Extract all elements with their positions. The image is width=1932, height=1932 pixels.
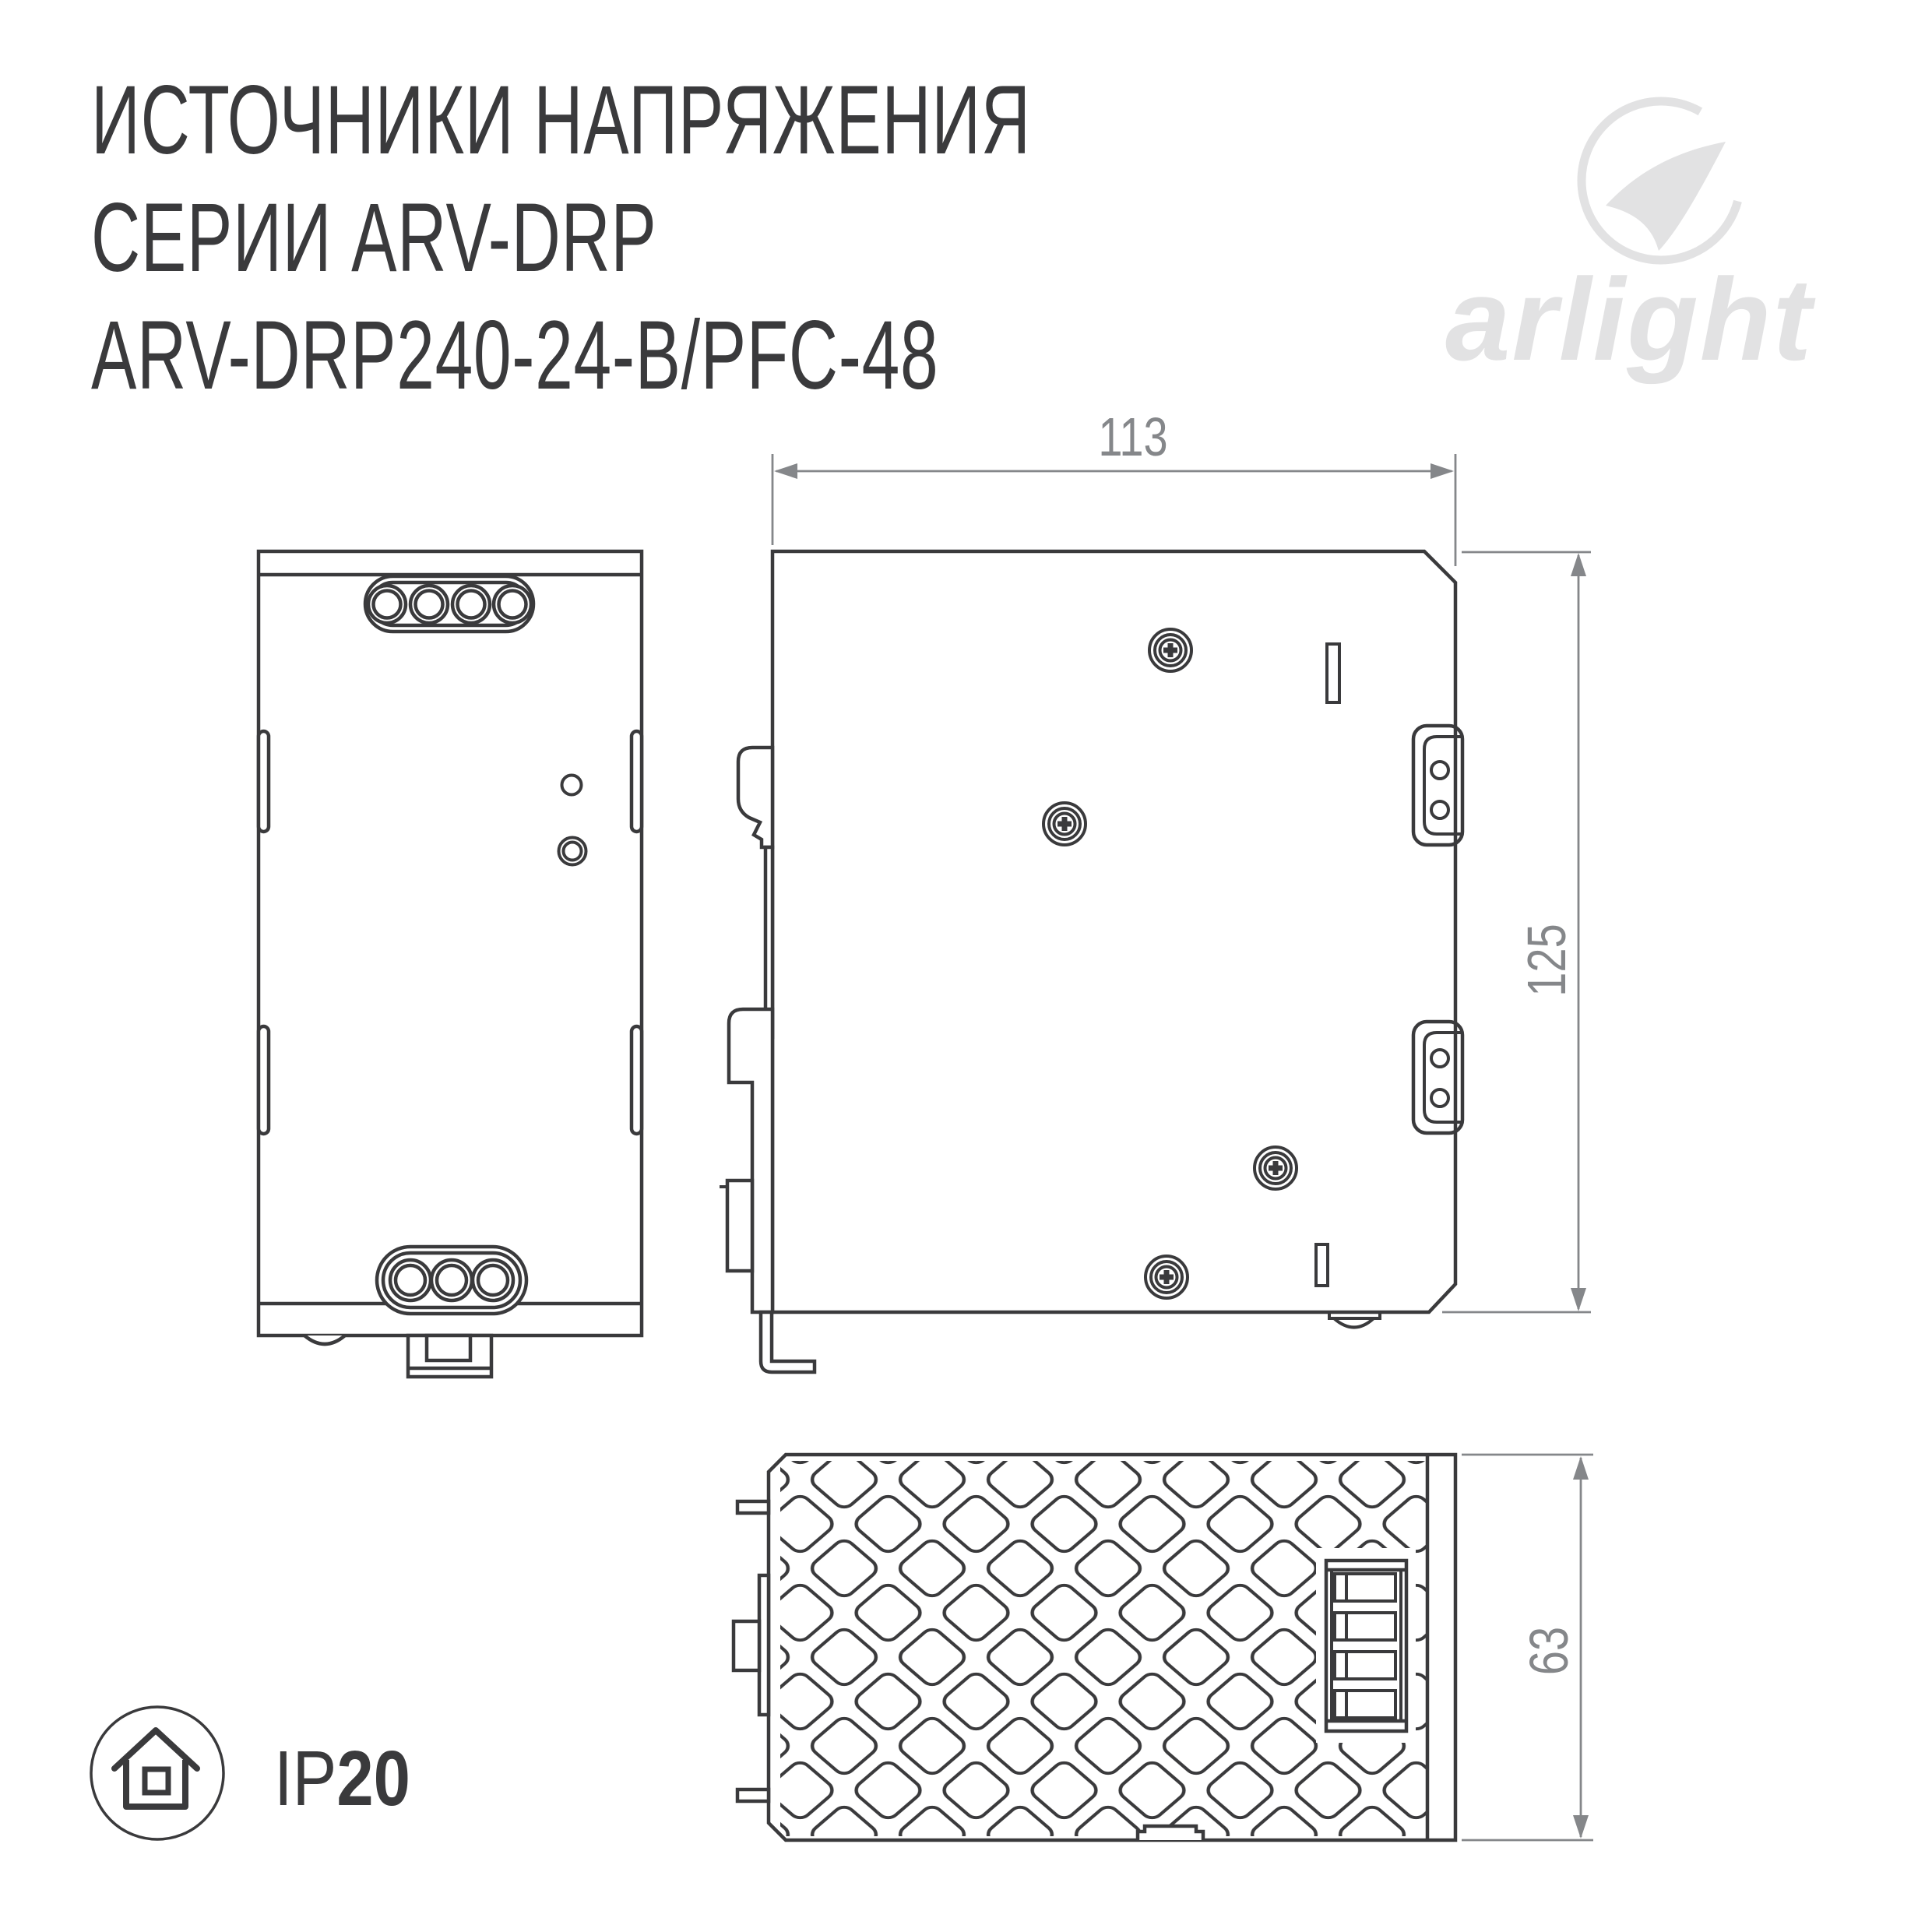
- front-output-connector: [377, 1247, 526, 1314]
- title-line-3: ARV-DRP240-24-B/PFC-48: [91, 300, 938, 409]
- title-block: ИСТОЧНИКИ НАПРЯЖЕНИЯ СЕРИИ ARV-DRP ARV-D…: [91, 65, 1031, 409]
- dimension-depth: 63: [1462, 1455, 1593, 1840]
- screw-icon: [1255, 1147, 1297, 1189]
- screw-icon: [1145, 1256, 1188, 1298]
- bottom-view-clips: [734, 1501, 769, 1801]
- dimension-depth-label: 63: [1519, 1627, 1579, 1675]
- technical-drawing: ИСТОЧНИКИ НАПРЯЖЕНИЯ СЕРИИ ARV-DRP ARV-D…: [0, 0, 1932, 1932]
- logo-swoosh-icon: [1582, 101, 1740, 260]
- bottom-latch-tab: [1138, 1826, 1203, 1840]
- bottom-view: [734, 1455, 1455, 1840]
- front-view: [259, 551, 642, 1377]
- side-din-latch: [1329, 1312, 1380, 1328]
- dimension-height-label: 125: [1517, 924, 1577, 996]
- ip-rating: IP20: [91, 1707, 410, 1839]
- front-body: [259, 551, 642, 1336]
- screw-icon: [1149, 629, 1191, 671]
- dimension-width: 113: [772, 407, 1455, 566]
- dimension-height: 125: [1442, 552, 1591, 1312]
- page-root: ИСТОЧНИКИ НАПРЯЖЕНИЯ СЕРИИ ARV-DRP ARV-D…: [0, 0, 1932, 1932]
- title-line-1: ИСТОЧНИКИ НАПРЯЖЕНИЯ: [91, 65, 1031, 174]
- ip-rating-label: IP20: [274, 1734, 410, 1821]
- arlight-logo: arlight: [1445, 101, 1816, 385]
- title-line-2: СЕРИИ ARV-DRP: [91, 182, 656, 291]
- logo-wordmark: arlight: [1445, 254, 1816, 385]
- screw-icon: [1043, 803, 1086, 845]
- side-body: [772, 551, 1455, 1312]
- front-input-connector: [365, 576, 533, 632]
- side-view: [720, 551, 1462, 1372]
- indoor-house-icon: [91, 1707, 223, 1839]
- terminal-block: [1316, 1548, 1416, 1743]
- dimension-width-label: 113: [1098, 407, 1167, 467]
- front-din-latch: [304, 1336, 491, 1377]
